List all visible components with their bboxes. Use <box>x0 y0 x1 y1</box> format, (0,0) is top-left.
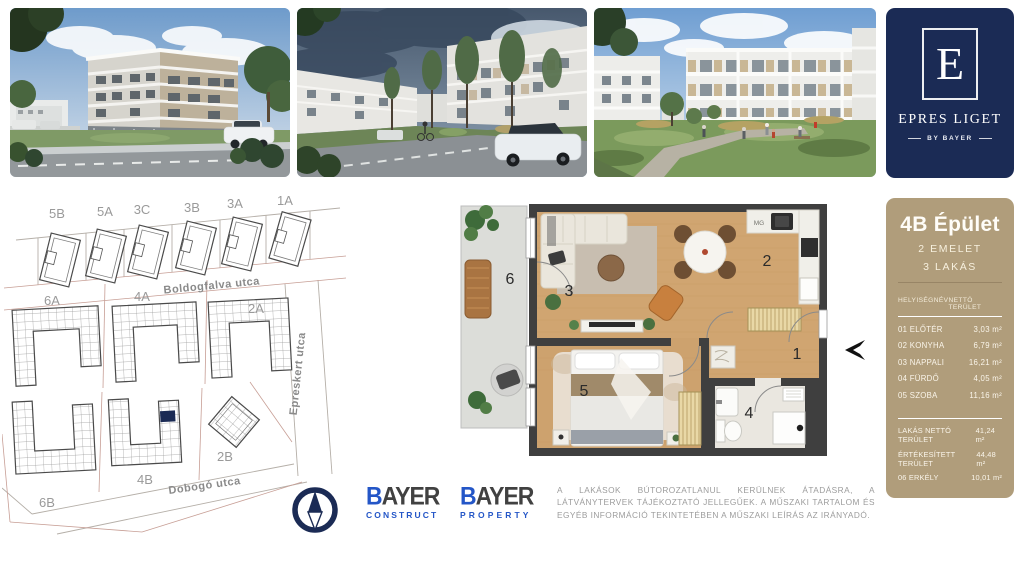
byline-text: BY BAYER <box>927 135 973 142</box>
render-photo-courtyard <box>594 8 876 177</box>
table-row: 05 SZOBA 11,16 m² <box>898 391 1002 400</box>
plot-label-6b: 6B <box>39 495 55 510</box>
render-photo-street-view-art <box>297 8 587 177</box>
room-number-bedroom: 5 <box>580 383 589 400</box>
brand-sub-property: PROPERTY <box>460 510 533 520</box>
brand-rest: AYER <box>382 482 440 510</box>
table-header-rule <box>898 316 1002 317</box>
col-net-area: NETTÓ TERÜLET <box>948 297 1002 311</box>
table-row: 02 KONYHA 6,79 m² <box>898 341 1002 350</box>
room-number-hall: 1 <box>793 346 802 363</box>
table-row: 01 ELŐTÉR 3,03 m² <box>898 325 1002 334</box>
room-table-header: HELYISÉGNÉV NETTÓ TERÜLET <box>898 297 1002 311</box>
byline-rule-right <box>979 138 992 139</box>
room-area: 6,79 m² <box>973 341 1002 350</box>
col-room-name: HELYISÉGNÉV <box>898 297 948 311</box>
summary-row: 06 ERKÉLY 10,01 m² <box>898 473 1002 482</box>
room-area: 11,16 m² <box>969 391 1002 400</box>
render-photo-building-front <box>10 8 290 177</box>
tv <box>589 322 635 327</box>
street-label-dobogo: Dobogó utca <box>168 475 242 497</box>
rattan-lounger <box>465 260 491 318</box>
brand-rest: AYER <box>476 482 534 510</box>
bayer-construct-wordmark: BAYER <box>366 484 439 509</box>
render-photo-building-front-art <box>10 8 290 177</box>
compass-icon <box>289 484 341 536</box>
room-number-bath: 4 <box>745 405 754 422</box>
summary-area: 41,24 m² <box>976 426 1002 444</box>
toilet <box>716 420 725 442</box>
plot-label-5b: 5B <box>49 206 65 221</box>
room-area: 3,03 m² <box>973 325 1002 334</box>
summary-row: ÉRTÉKESÍTETT TERÜLET 44,48 m² <box>898 450 1002 468</box>
room-name: 04 FÜRDŐ <box>898 374 939 383</box>
building-units: 3 LAKÁS <box>898 261 1002 273</box>
plot-label-5a: 5A <box>97 204 113 219</box>
room-number-balcony: 6 <box>506 271 515 288</box>
room-name: 02 KONYHA <box>898 341 944 350</box>
balcony-room: 6 <box>461 205 527 428</box>
room-area: 4,05 m² <box>973 374 1002 383</box>
entrance-arrow-icon <box>845 340 865 360</box>
room-area: 16,21 m² <box>969 358 1002 367</box>
villa-buildings <box>40 212 311 287</box>
hall-bench <box>711 346 735 368</box>
brand-sub-construct: CONSTRUCT <box>366 510 439 520</box>
building-title: 4B Épület <box>898 198 1002 237</box>
bayer-property-wordmark: BAYER <box>460 484 533 509</box>
fridge <box>800 278 818 300</box>
plot-label-1a: 1A <box>277 193 293 208</box>
render-photo-street-view <box>297 8 587 177</box>
logo-byline: BY BAYER <box>908 135 992 142</box>
plot-label-3b: 3B <box>184 200 200 215</box>
street-label-boldogfalva: Boldogfalva utca <box>163 275 261 296</box>
byline-rule-left <box>908 138 921 139</box>
area-summary: LAKÁS NETTÓ TERÜLET 41,24 m² ÉRTÉKESÍTET… <box>898 418 1002 482</box>
room-name: 03 NAPPALI <box>898 358 944 367</box>
highlighted-unit-4b <box>160 410 176 422</box>
bayer-property-logo: BAYER PROPERTY <box>460 484 533 520</box>
plot-label-4a: 4A <box>134 289 150 304</box>
summary-name: ÉRTÉKESÍTETT TERÜLET <box>898 450 976 468</box>
building-info-panel: 4B Épület 2 EMELET 3 LAKÁS HELYISÉGNÉV N… <box>886 198 1014 498</box>
plot-label-3c: 3C <box>134 202 151 217</box>
plot-label-6a: 6A <box>44 293 60 308</box>
logo-e-letter: E <box>936 41 964 87</box>
panel-divider <box>898 282 1002 283</box>
coffee-table <box>598 255 624 281</box>
epres-liget-logo-card: E EPRES LIGET BY BAYER <box>886 8 1014 178</box>
brand-initial: B <box>366 482 382 510</box>
building-floors: 2 EMELET <box>898 243 1002 255</box>
summary-area: 44,48 m² <box>976 450 1002 468</box>
plant <box>545 294 561 310</box>
disclaimer-text: A LAKÁSOK BÚTOROZATLANUL KERÜLNEK ÁTADÁS… <box>557 484 875 521</box>
cooktop <box>801 238 818 257</box>
appliance-label: MG <box>754 220 764 227</box>
entry-door-opening <box>819 310 827 338</box>
logo-e-box: E <box>922 28 978 100</box>
logo-title: EPRES LIGET <box>898 112 1002 128</box>
plot-label-2b: 2B <box>217 449 233 464</box>
floor-plan: 6 MG <box>453 192 883 467</box>
render-photo-courtyard-art <box>594 8 876 177</box>
plot-label-2a: 2A <box>248 301 264 316</box>
table-row: 04 FÜRDŐ 4,05 m² <box>898 374 1002 383</box>
room-name: 05 SZOBA <box>898 391 938 400</box>
summary-name: 06 ERKÉLY <box>898 473 939 482</box>
room-number-living: 3 <box>565 283 574 300</box>
summary-area: 10,01 m² <box>971 473 1002 482</box>
summary-row: LAKÁS NETTÓ TERÜLET 41,24 m² <box>898 426 1002 444</box>
room-number-kitchen: 2 <box>763 253 772 270</box>
bedroom-wardrobe <box>679 392 701 445</box>
bedroom <box>551 350 701 446</box>
table-row: 03 NAPPALI 16,21 m² <box>898 358 1002 367</box>
brand-initial: B <box>460 482 476 510</box>
summary-name: LAKÁS NETTÓ TERÜLET <box>898 426 976 444</box>
room-name: 01 ELŐTÉR <box>898 325 943 334</box>
plot-label-4b: 4B <box>137 472 153 487</box>
bayer-construct-logo: BAYER CONSTRUCT <box>366 484 439 520</box>
summary-rule <box>898 418 1002 419</box>
plot-label-3a: 3A <box>227 196 243 211</box>
